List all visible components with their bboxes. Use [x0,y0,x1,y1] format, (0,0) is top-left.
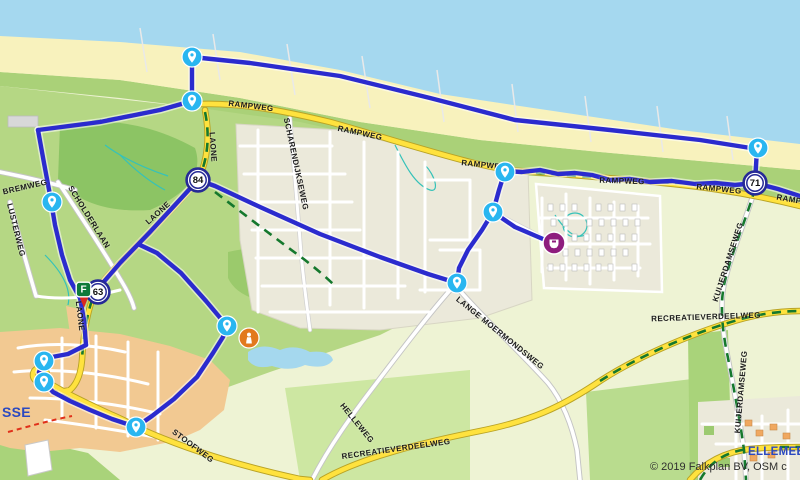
route-waypoint-pin[interactable] [494,161,516,188]
location-pin-icon [494,161,516,183]
junction-circle-icon: 71 [742,170,768,196]
location-pin-icon [747,137,769,159]
location-pin-icon [482,201,504,223]
location-pin-icon [446,272,468,294]
town-label: ELLEMEET [748,446,800,458]
map-attribution: © 2019 Falkplan BV, OSM c [650,461,787,473]
finish-flag-marker[interactable]: F [74,281,94,314]
destination-poi-icon [541,230,567,256]
attraction-poi-icon [238,327,260,349]
svg-text:F: F [80,285,86,296]
junction-marker-71[interactable]: 71 [742,170,768,201]
destination-poi[interactable] [541,230,567,261]
route-waypoint-pin[interactable] [181,90,203,117]
attraction-poi[interactable] [238,327,260,354]
location-pin-icon [33,350,55,372]
town-label: SSE [2,404,31,420]
route-waypoint-pin[interactable] [181,46,203,73]
svg-text:71: 71 [750,178,761,189]
map-terrain-layer [0,0,800,480]
junction-marker-84[interactable]: 84 [185,167,211,198]
route-waypoint-pin[interactable] [747,137,769,164]
route-waypoint-pin[interactable] [482,201,504,228]
junction-circle-icon: 84 [185,167,211,193]
location-pin-icon [33,371,55,393]
route-waypoint-pin[interactable] [41,191,63,218]
route-waypoint-pin[interactable] [446,272,468,299]
road-label: RAMPWEG [599,176,645,187]
map-canvas[interactable]: RAMPWEGRAMPWEGRAMPWEGRAMPWEGRAMPWEGRAMPW… [0,0,800,480]
route-waypoint-pin[interactable] [216,315,238,342]
route-waypoint-pin[interactable] [125,416,147,443]
svg-text:63: 63 [93,287,104,298]
finish-flag-icon: F [74,281,94,309]
location-pin-icon [125,416,147,438]
svg-text:84: 84 [193,175,204,186]
location-pin-icon [181,46,203,68]
location-pin-icon [216,315,238,337]
location-pin-icon [41,191,63,213]
route-waypoint-pin[interactable] [33,371,55,398]
location-pin-icon [181,90,203,112]
